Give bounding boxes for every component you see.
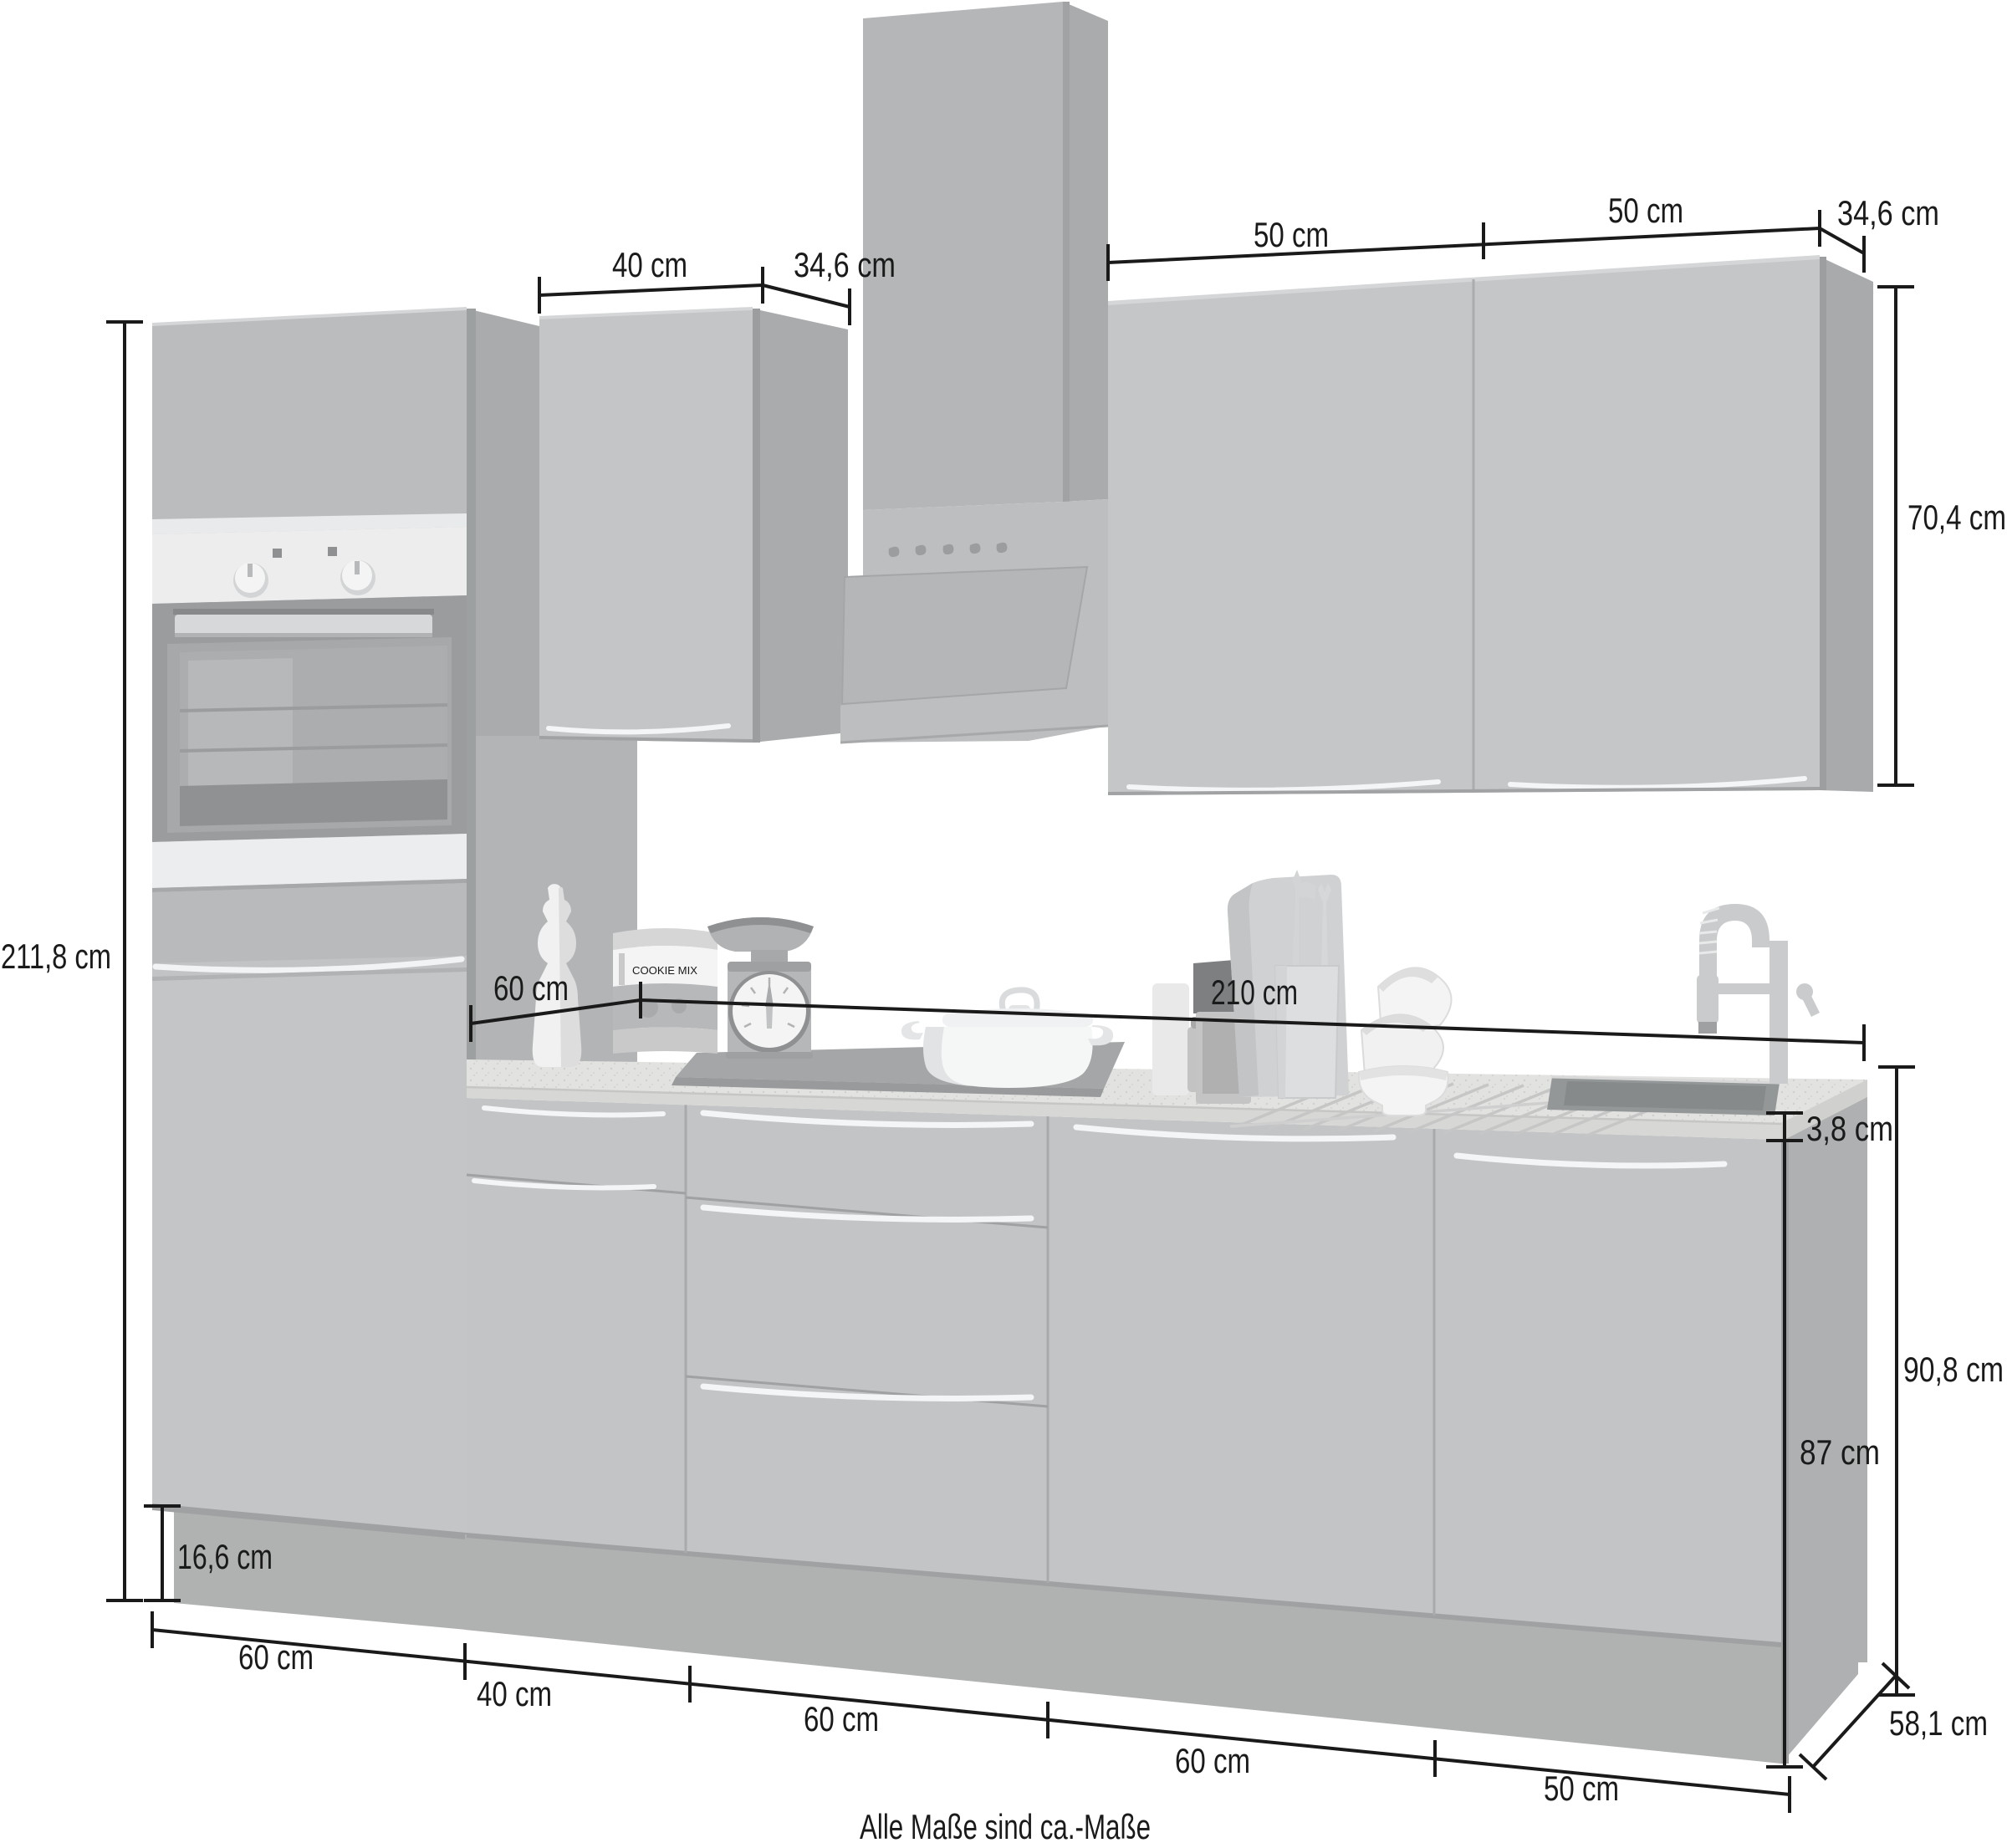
svg-text:50 cm: 50 cm [1608, 191, 1683, 230]
svg-text:60 cm: 60 cm [1175, 1741, 1250, 1780]
svg-text:40 cm: 40 cm [477, 1674, 552, 1713]
svg-text:60 cm: 60 cm [804, 1699, 879, 1738]
svg-text:210 cm: 210 cm [1211, 972, 1298, 1012]
svg-text:Alle Maße sind ca.-Maße: Alle Maße sind ca.-Maße [860, 1807, 1151, 1846]
svg-text:34,6 cm: 34,6 cm [1837, 193, 1939, 232]
svg-text:40 cm: 40 cm [612, 245, 687, 284]
svg-text:211,8 cm: 211,8 cm [1, 937, 111, 976]
svg-text:87 cm: 87 cm [1800, 1432, 1880, 1472]
svg-text:70,4 cm: 70,4 cm [1907, 498, 2006, 537]
svg-text:3,8 cm: 3,8 cm [1806, 1109, 1893, 1148]
svg-text:16,6 cm: 16,6 cm [177, 1537, 273, 1576]
svg-text:60 cm: 60 cm [238, 1637, 314, 1677]
svg-text:50 cm: 50 cm [1254, 215, 1329, 254]
svg-text:58,1 cm: 58,1 cm [1889, 1703, 1988, 1743]
svg-text:34,6 cm: 34,6 cm [794, 245, 896, 284]
svg-text:50 cm: 50 cm [1544, 1769, 1619, 1808]
svg-text:COOKIE MIX: COOKIE MIX [632, 964, 697, 977]
svg-text:90,8 cm: 90,8 cm [1903, 1350, 2004, 1389]
svg-text:60 cm: 60 cm [493, 968, 569, 1008]
